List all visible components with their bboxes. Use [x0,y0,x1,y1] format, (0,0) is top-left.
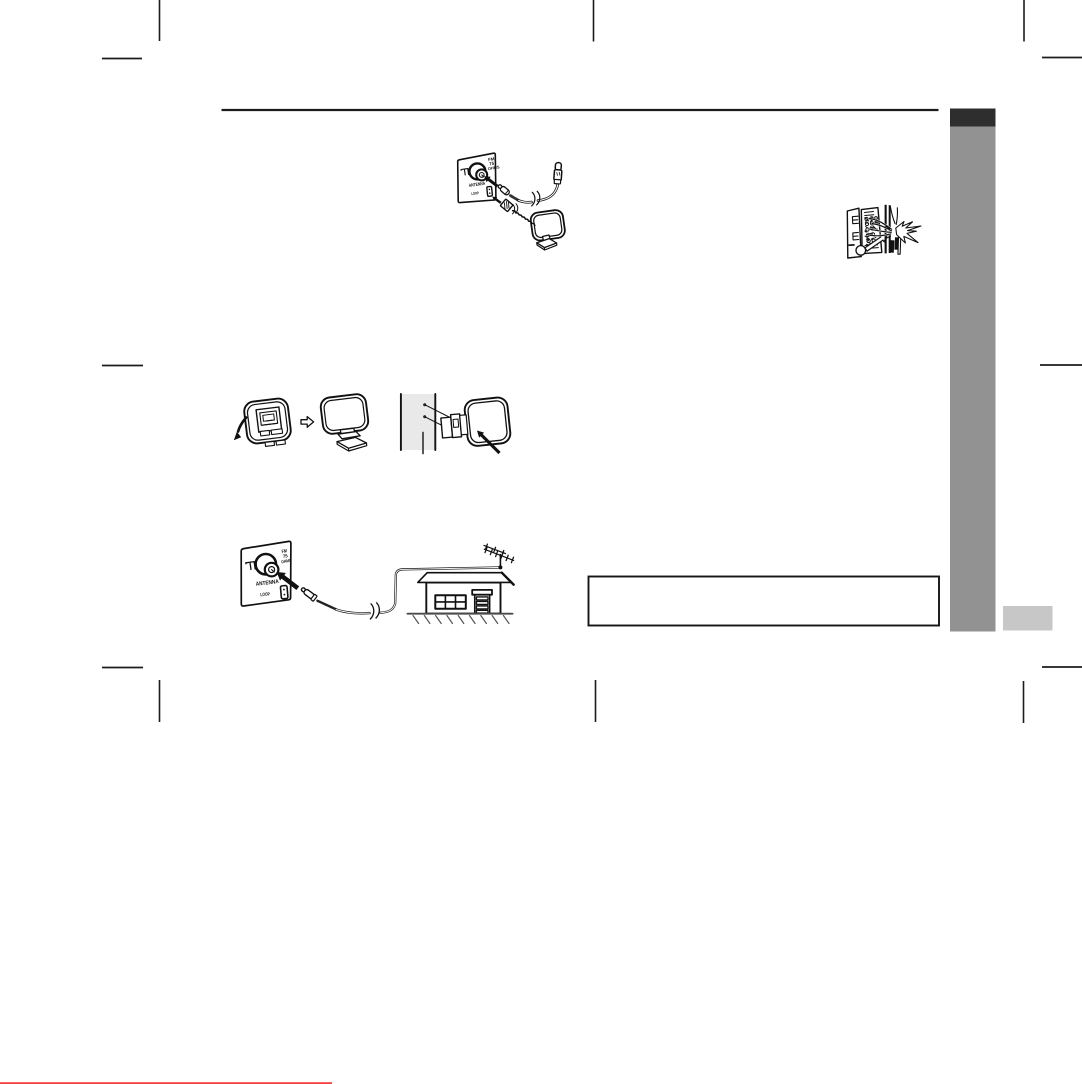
svg-text:LOOP: LOOP [471,191,479,196]
svg-text:LOOP: LOOP [260,591,270,597]
